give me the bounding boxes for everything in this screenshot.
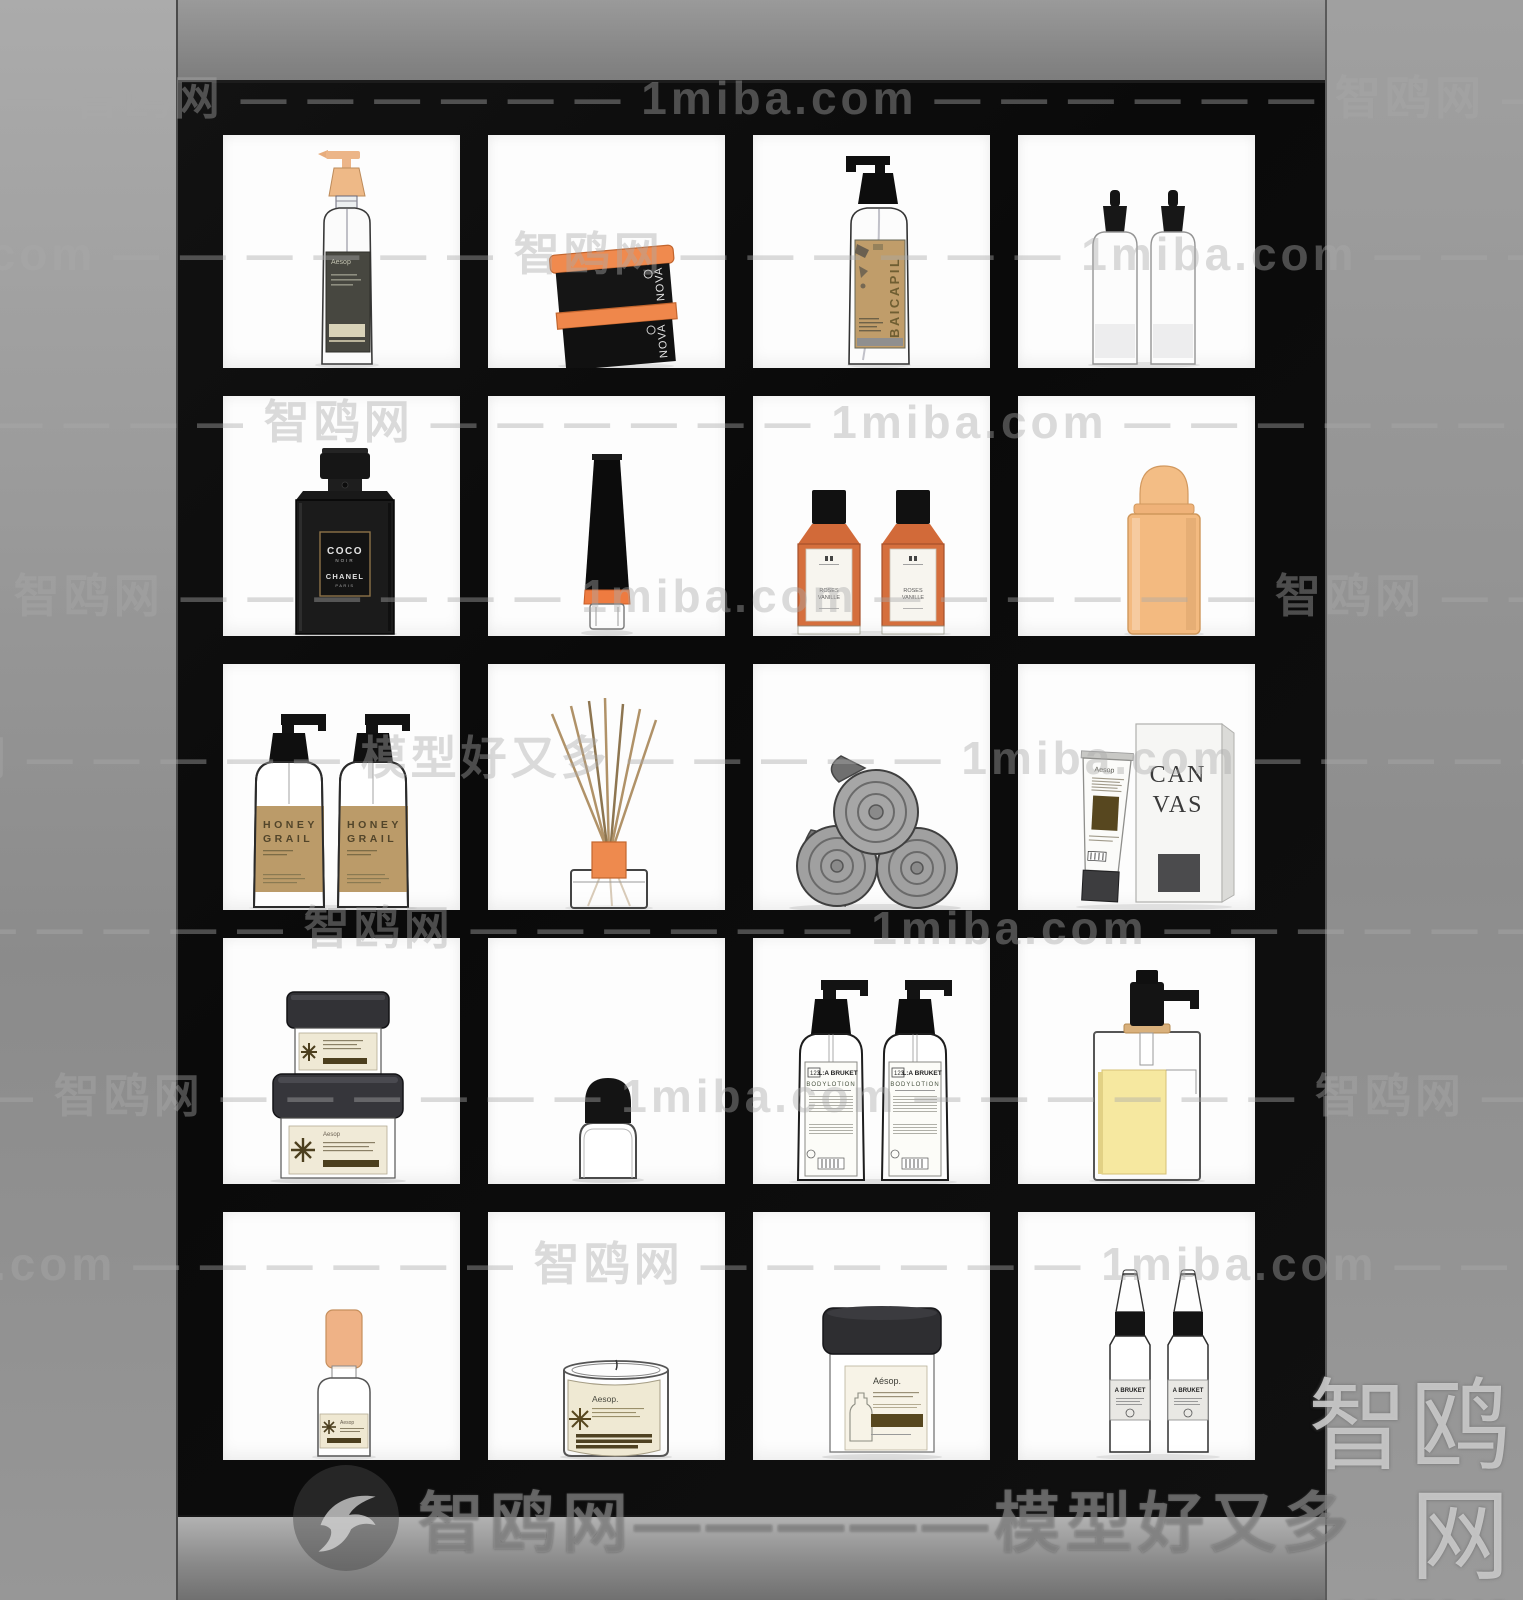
shelf-cell-r2c2 (488, 396, 725, 636)
product-dropper-bottles (1018, 128, 1255, 368)
box-title-text: VAS (1153, 792, 1204, 818)
product-dome-cap-perfume (488, 938, 725, 1184)
shelf-cell-r1c2: NOVA NOVA (488, 135, 725, 368)
tube-brand-text: Aesop (1094, 767, 1114, 775)
shelf-cell-r3c1: HONEY GRAIL (223, 664, 460, 910)
product-amber-pump-bottle: Aesop (223, 128, 460, 368)
product-aesop-tube-canvas-box: CAN VAS Aesop (1018, 664, 1255, 910)
star-logo-icon (569, 1408, 591, 1430)
shelf-cell-r4c2 (488, 938, 725, 1184)
label-brand-text: HONEY (263, 819, 318, 831)
shelf-cell-r5c4: A BRUKET A BRUKET (1018, 1212, 1255, 1460)
product-nova-jars: NOVA NOVA (488, 128, 725, 368)
product-roses-vanille-bottles: ROSES VANILLE ROSES VANIL (753, 396, 990, 636)
label-brand-text: Aesop (340, 1420, 354, 1426)
spray-bottle-right: A BRUKET (1168, 1270, 1208, 1452)
perfume-brand-text: CHANEL (326, 572, 364, 581)
product-baicapil-pump-bottle: BAICAPIL (753, 128, 990, 368)
shelf-cell-r1c3: BAICAPIL (753, 135, 990, 368)
product-chanel-coco-noir: COCO NOIR CHANEL PARIS (223, 396, 460, 636)
bruket-bottle-right: 123 L:A BRUKET BODYLOTION (882, 980, 952, 1180)
shelf-cell-r5c2: Aesop. (488, 1212, 725, 1460)
right-wall (1325, 0, 1523, 1600)
diffuser-reeds (552, 698, 656, 854)
render-scene: Aesop NOVA (0, 0, 1523, 1600)
shelf-cell-r2c4 (1018, 396, 1255, 636)
product-glass-soap-dispenser (1018, 938, 1255, 1184)
roses-bottle-right: ROSES VANILLE (882, 490, 944, 634)
product-black-tube (488, 396, 725, 636)
spray-brand-text: A BRUKET (1115, 1388, 1146, 1394)
product-stacked-black-jars: Aesop (223, 938, 460, 1184)
label-brand-text: Aesop (331, 259, 351, 266)
product-orange-cap-bottle: Aesop (223, 1212, 460, 1460)
fragrance-name-text: ROSES (819, 588, 839, 594)
shelf-cell-r3c4: CAN VAS Aesop (1018, 664, 1255, 910)
product-honey-grail-bottles: HONEY GRAIL (223, 664, 460, 910)
star-logo-icon (322, 1420, 336, 1434)
towel-roll-top (834, 770, 918, 854)
spray-brand-text: A BRUKET (1173, 1388, 1204, 1394)
label-brand-text: L:A BRUKET (818, 1070, 858, 1077)
label-brand-text: L:A BRUKET (902, 1070, 942, 1077)
shelf-cell-r4c1: Aesop (223, 938, 460, 1184)
shelf-cell-r4c3: 123 L:A BRUKET BODYLOTION (753, 938, 990, 1184)
shelf-cell-r3c3 (753, 664, 990, 910)
product-tan-cylinder-bottle (1018, 396, 1255, 636)
perfume-name-text: COCO (327, 546, 363, 557)
product-aesop-jar: Aésop. (753, 1212, 990, 1460)
product-rolled-towels (753, 664, 990, 910)
jar-brand-text: Aesop (323, 1132, 341, 1138)
shelf-grid: Aesop NOVA (223, 135, 1255, 1460)
product-reed-diffuser (488, 664, 725, 910)
label-type-text: BODYLOTION (806, 1082, 855, 1088)
aesop-tube: Aesop (1074, 751, 1134, 903)
spray-bottle-left: A BRUKET (1110, 1270, 1150, 1452)
cabinet-base (178, 1515, 1325, 1600)
label-brand-text: GRAIL (347, 833, 397, 845)
shelf-cell-r1c1: Aesop (223, 135, 460, 368)
candle-brand-text: Aesop. (592, 1394, 618, 1404)
shelf-cell-r4c4 (1018, 938, 1255, 1184)
display-cabinet: Aesop NOVA (178, 83, 1325, 1515)
box-title-text: CAN (1150, 762, 1207, 788)
jar-brand-text: Aésop. (873, 1376, 901, 1386)
honey-grail-bottle-left: HONEY GRAIL (254, 714, 326, 907)
roses-bottle-left: ROSES VANILLE (798, 490, 860, 634)
shelf-cell-r5c3: Aésop. (753, 1212, 990, 1460)
shelf-cell-r1c4 (1018, 135, 1255, 368)
shelf-cell-r5c1: Aesop (223, 1212, 460, 1460)
perfume-sub-text: NOIR (335, 558, 354, 563)
label-brand-text: GRAIL (263, 833, 313, 845)
shelf-cell-r2c1: COCO NOIR CHANEL PARIS (223, 396, 460, 636)
fragrance-name-text: VANILLE (902, 595, 925, 601)
product-bruket-spray-bottles: A BRUKET A BRUKET (1018, 1212, 1255, 1460)
label-brand-text: HONEY (347, 819, 402, 831)
label-type-text: BODYLOTION (890, 1082, 939, 1088)
perfume-origin-text: PARIS (335, 583, 354, 588)
bruket-bottle-left: 123 L:A BRUKET BODYLOTION (798, 980, 868, 1180)
product-bruket-lotion-bottles: 123 L:A BRUKET BODYLOTION (753, 938, 990, 1184)
star-logo-icon (301, 1043, 317, 1061)
product-aesop-candle: Aesop. (488, 1212, 725, 1460)
cabinet-top-panel (178, 0, 1325, 83)
shelf-cell-r2c3: ROSES VANILLE ROSES VANIL (753, 396, 990, 636)
left-wall (0, 0, 178, 1600)
shelf-cell-r3c2 (488, 664, 725, 910)
fragrance-name-text: ROSES (903, 588, 923, 594)
label-brand-text: BAICAPIL (887, 257, 902, 338)
fragrance-name-text: VANILLE (818, 595, 841, 601)
honey-grail-bottle-right: HONEY GRAIL (338, 714, 410, 907)
